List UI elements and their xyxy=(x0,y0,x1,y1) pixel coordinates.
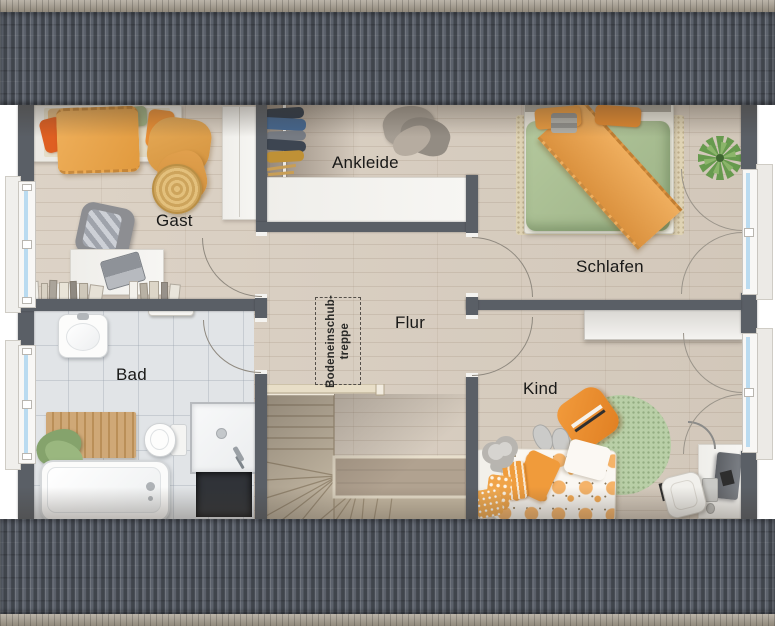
wall-left-a xyxy=(18,105,34,181)
shower-handheld xyxy=(232,446,244,462)
doorframe-gast-top xyxy=(256,232,267,236)
schlafen-pillow-2 xyxy=(594,104,641,127)
duct-shaft xyxy=(196,472,252,517)
window-gast-tick-bottom xyxy=(22,297,32,304)
balcony-door-kind-handle xyxy=(744,388,754,397)
floor-plan: Bodeneinschub- treppe Gast Ankleide Schl… xyxy=(0,0,775,626)
room-label-flur: Flur xyxy=(395,313,425,333)
staircase xyxy=(258,384,470,520)
balcony-door-schlafen-sill xyxy=(756,164,773,300)
room-label-gast: Gast xyxy=(156,211,193,231)
room-label-kind: Kind xyxy=(523,379,558,399)
gast-wicker-rug xyxy=(152,164,202,214)
kind-mouse xyxy=(706,503,715,514)
roof-ridge-top xyxy=(0,0,775,12)
attic-hatch-label-line1: Bodeneinschub- xyxy=(324,295,338,388)
bath-sink xyxy=(58,314,108,358)
gast-blanket xyxy=(56,106,140,175)
wall-gast-bad xyxy=(18,299,255,311)
wall-central-pier xyxy=(466,297,478,315)
ankleide-sideboard xyxy=(263,177,468,224)
roof-ridge-bottom xyxy=(0,614,775,626)
window-bad-tick-bottom xyxy=(22,453,32,460)
window-bad-handle xyxy=(22,400,32,409)
room-label-bad: Bad xyxy=(116,365,147,385)
ankleide-wardrobe xyxy=(222,106,258,220)
attic-hatch-label-line2: treppe xyxy=(338,323,352,359)
roof-bottom xyxy=(0,519,775,614)
wall-bad-east xyxy=(255,374,267,519)
bathtub xyxy=(40,460,170,522)
ankleide-wardrobe-divider xyxy=(239,107,240,217)
window-gast-tick-top xyxy=(22,184,32,191)
wall-schlafen-kind xyxy=(466,300,741,310)
schlafen-bed xyxy=(524,103,674,234)
attic-hatch-outline: Bodeneinschub- treppe xyxy=(315,297,361,385)
gast-armchair-cushion xyxy=(81,208,122,252)
window-gast-handle xyxy=(22,240,32,249)
kind-cloud-table xyxy=(480,434,520,470)
window-bad-tick-top xyxy=(22,348,32,355)
gast-books-row xyxy=(30,280,192,300)
room-label-ankleide: Ankleide xyxy=(332,153,399,173)
balcony-door-kind-sill xyxy=(756,328,773,460)
balcony-door-schlafen-handle xyxy=(744,228,754,237)
bathtub-faucet xyxy=(146,482,155,491)
wall-right-b xyxy=(741,293,757,333)
wall-right-a xyxy=(741,105,757,169)
wall-hall-pier xyxy=(255,298,267,318)
closet-garment-blue xyxy=(262,117,307,131)
toilet xyxy=(144,422,186,458)
toilet-bowl xyxy=(144,423,176,457)
shower xyxy=(190,402,259,474)
shower-drain xyxy=(216,428,227,439)
wall-central-b xyxy=(466,377,478,519)
wall-ankleide-south xyxy=(256,222,466,232)
wall-gast-ankleide xyxy=(256,105,267,222)
schlafen-folded-stack xyxy=(551,113,577,133)
closet-garment-gold xyxy=(266,150,305,163)
roof-top xyxy=(0,12,775,105)
wall-central-a xyxy=(466,175,478,233)
wall-right-c xyxy=(741,451,757,519)
sink-faucet xyxy=(77,313,89,320)
room-label-schlafen: Schlafen xyxy=(576,257,644,277)
wall-left-c xyxy=(18,462,34,519)
